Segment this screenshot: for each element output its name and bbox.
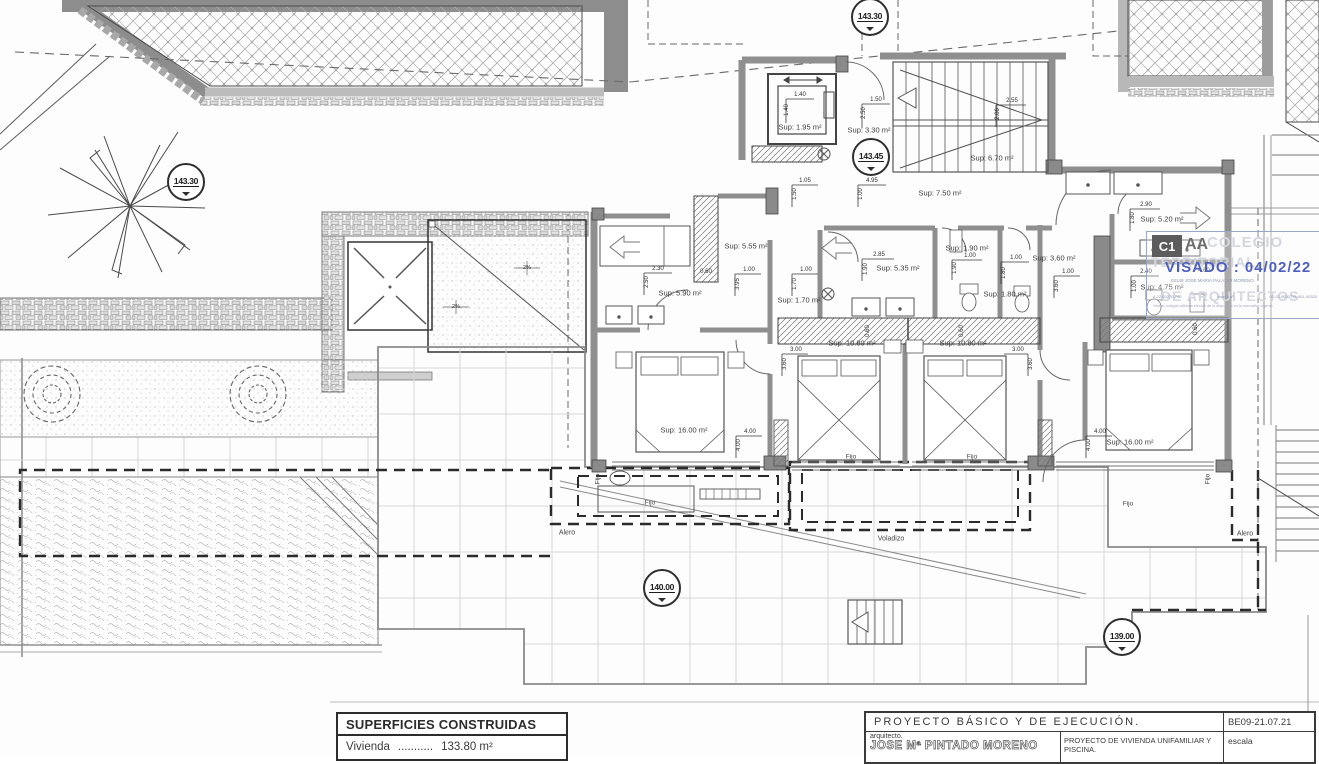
stamp-logo-letters: AA: [1185, 236, 1208, 254]
stamp-visado-sep: :: [1234, 259, 1240, 276]
stamp-watermark: COLEGIO: [1207, 234, 1283, 251]
stamp-visado-date: 04/02/22: [1245, 259, 1311, 276]
staircase: [893, 62, 1048, 172]
surfaces-row-value: 133.80 m²: [441, 741, 493, 753]
roof-top-left: [0, 0, 1128, 150]
visado-stamp: COLEGIO TERRITORIAL DE ARQUITECTOS C1 AA…: [1146, 231, 1319, 319]
architect-cell: arquitecto. JOSE Mª PINTADO MORENO: [866, 732, 1061, 762]
bed: [616, 340, 1209, 460]
project-description: PROYECTO DE VIVIENDA UNIFAMILIAR Y PISCI…: [1061, 732, 1224, 762]
scale-label: escala: [1224, 732, 1314, 762]
project-title: PROYECTO BÁSICO Y DE EJECUCIÓN.: [866, 713, 1224, 731]
floor-plan-sheet: Sup: 1.95 m²Sup: 3.30 m²Sup: 6.70 m²Sup:…: [0, 0, 1319, 756]
stamp-code-left: 8-22-02270-700: [1153, 294, 1181, 299]
stamp-logo: C1: [1152, 235, 1182, 257]
closet: [1066, 172, 1162, 194]
elevator: [768, 74, 836, 144]
garden-plant: [48, 132, 205, 278]
title-block: PROYECTO BÁSICO Y DE EJECUCIÓN. BE09-21.…: [864, 711, 1316, 764]
stamp-visado-line: VISADO : 04/02/22: [1165, 259, 1311, 276]
architect-name: JOSE Mª PINTADO MORENO: [870, 740, 1056, 752]
title-block-row1: PROYECTO BÁSICO Y DE EJECUCIÓN. BE09-21.…: [866, 713, 1314, 732]
stamp-code-mid: visado nº: [1217, 294, 1233, 299]
sheet-code: BE09-21.07.21: [1224, 713, 1314, 731]
title-block-row2: arquitecto. JOSE Mª PINTADO MORENO PROYE…: [866, 732, 1314, 762]
architect-label: arquitecto.: [870, 733, 1056, 740]
stamp-note: Visado colegial válido a efectos de lo d…: [1153, 304, 1273, 308]
built-surfaces-box: SUPERFICIES CONSTRUIDAS Vivienda .......…: [336, 712, 568, 761]
surfaces-row-label: Vivienda: [346, 741, 390, 753]
exterior-stair-right: [1258, 425, 1319, 562]
flat-roof-terrace: [428, 220, 586, 352]
pool: [0, 477, 382, 652]
stamp-codes: 8-22-02270-700 visado nº 02-22-0000794-0…: [1153, 294, 1317, 299]
stamp-visado-label: VISADO: [1165, 259, 1229, 276]
stamp-registrant: 02149 JOSE MARIA PALACIO MORENO: [1171, 278, 1254, 283]
surfaces-title: SUPERFICIES CONSTRUIDAS: [338, 714, 566, 736]
stamp-code-right: 02-22-0000794-001-00320: [1269, 294, 1317, 299]
surfaces-row-dots: ...........: [398, 741, 433, 753]
floor-plan-drawing: [0, 0, 1319, 756]
